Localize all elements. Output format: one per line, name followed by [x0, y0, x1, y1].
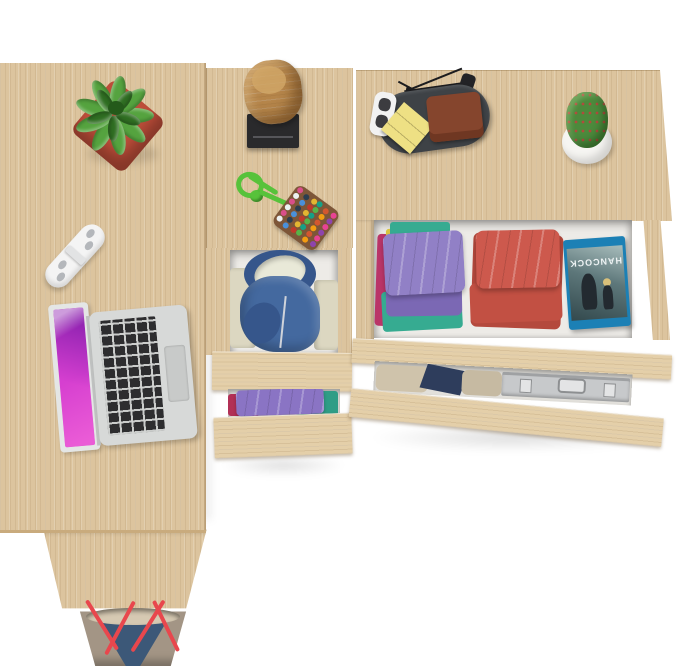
hook-dot: [85, 228, 97, 240]
product-photo-canvas: HANCOCK: [0, 0, 700, 666]
purple-cloth: [236, 389, 325, 417]
right-unit-right-wall: [632, 220, 670, 340]
bluray-case: HANCOCK: [563, 236, 631, 330]
right-unit-drawer-interior: HANCOCK: [374, 220, 632, 338]
log-plate-slot: [253, 136, 293, 138]
succulent-in-red-pot: [60, 52, 180, 172]
succulent-center: [108, 101, 124, 115]
log-top-face: [252, 66, 286, 94]
pompom-keychain: [232, 170, 336, 246]
hook-dot: [55, 271, 67, 283]
laptop-base: [89, 304, 198, 446]
log-decor-group: [240, 58, 306, 154]
open-silver-laptop: [47, 287, 200, 459]
khaki-cloth-1: [375, 364, 428, 393]
red-folded-top: [476, 229, 561, 288]
tower-drawer-interior: [230, 250, 338, 354]
laptop-keyboard: [98, 316, 165, 436]
khaki-cloth-2: [461, 370, 502, 397]
cactus-body: [566, 92, 608, 148]
hook-dot: [83, 240, 95, 252]
valet-tray-group: [374, 60, 494, 156]
bead-pad: [271, 183, 341, 252]
white-wall-hook: [44, 218, 108, 294]
tote-handbag: [74, 594, 192, 666]
hook-dot: [56, 259, 68, 271]
hook-clip: [65, 245, 87, 266]
bluray-title: HANCOCK: [567, 255, 624, 269]
tower-drawer-front-1: [212, 351, 352, 391]
tower-drawer-front-2: [213, 413, 352, 459]
shadow-under-tower: [220, 458, 346, 476]
right-unit-left-wall: [356, 220, 374, 342]
figure-man: [580, 273, 597, 310]
bluray-art: HANCOCK: [567, 245, 628, 321]
briefcase-latch-left: [519, 379, 532, 394]
purple-folded-top: [382, 230, 465, 296]
leather-wallet: [426, 91, 485, 142]
cactus-group: [560, 90, 614, 166]
briefcase-handle: [557, 378, 586, 394]
briefcase-latch-right: [603, 383, 616, 398]
aluminum-briefcase: [501, 372, 630, 403]
sunglasses-lens: [378, 97, 392, 112]
hook-body: [40, 219, 110, 293]
laptop-trackpad: [164, 345, 190, 403]
figure-woman: [602, 285, 614, 310]
